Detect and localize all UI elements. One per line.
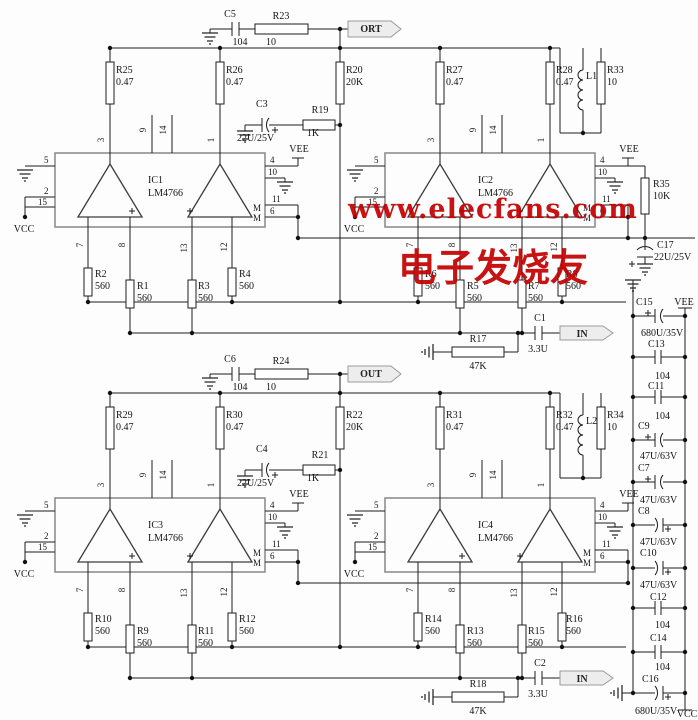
label-pins-p1: 1 bbox=[536, 483, 546, 488]
label-pins-m: M bbox=[583, 548, 591, 558]
label-resistors-R31-v: 0.47 bbox=[446, 422, 464, 433]
label-pins-p14: 14 bbox=[488, 125, 498, 135]
label-pins-p7: 7 bbox=[405, 587, 415, 592]
label-resistors-R16-v: 560 bbox=[566, 626, 581, 637]
label-pins-p8: 8 bbox=[117, 242, 127, 247]
label-ics-0-ref: IC1 bbox=[148, 175, 163, 186]
label-capacitors-C5-r: C5 bbox=[224, 9, 236, 20]
label-resistors-R35-v: 10K bbox=[653, 191, 671, 202]
label-capacitors-C16-v: 680U/35V bbox=[635, 706, 678, 717]
label-pins-p5: 5 bbox=[44, 155, 49, 165]
label-pins-p9: 9 bbox=[468, 127, 478, 132]
label-power-vee: VEE bbox=[619, 489, 638, 500]
label-pins-p15: 15 bbox=[38, 542, 48, 552]
label-resistors-R23-v: 10 bbox=[266, 37, 276, 48]
label-resistors-R13-r: R13 bbox=[467, 626, 484, 637]
label-pins-p9: 9 bbox=[468, 472, 478, 477]
label-pins-p11: 11 bbox=[602, 539, 611, 549]
label-capacitors-C14-v: 104 bbox=[655, 662, 670, 673]
label-resistors-R15-v: 560 bbox=[528, 638, 543, 649]
label-resistors-R7-v: 560 bbox=[528, 293, 543, 304]
label-ics-2-ref: IC3 bbox=[148, 520, 163, 531]
label-resistors-R35-r: R35 bbox=[653, 179, 670, 190]
label-pins-p10: 10 bbox=[268, 512, 278, 522]
label-capacitors-C14-r: C14 bbox=[650, 633, 667, 644]
label-capacitors-C6-v: 104 bbox=[233, 382, 248, 393]
label-pins-p6: 6 bbox=[600, 551, 605, 561]
label-capacitors-C9-v: 47U/63V bbox=[640, 451, 678, 462]
label-pins-p10: 10 bbox=[268, 167, 278, 177]
label-capacitors-C10-v: 47U/63V bbox=[640, 580, 678, 591]
label-ics-3-ref: IC4 bbox=[478, 520, 493, 531]
label-resistors-R11-r: R11 bbox=[198, 626, 214, 637]
label-capacitors-C4-r: C4 bbox=[256, 444, 268, 455]
label-pins-m: M bbox=[583, 558, 591, 568]
label-pins-p4: 4 bbox=[270, 500, 275, 510]
label-ics-3-part: LM4766 bbox=[478, 533, 513, 544]
label-resistors-R12-r: R12 bbox=[239, 614, 256, 625]
label-resistors-R26-v: 0.47 bbox=[226, 77, 244, 88]
label-resistors-R17-r: R17 bbox=[470, 334, 487, 345]
label-pins-p1: 1 bbox=[206, 483, 216, 488]
label-capacitors-C13-r: C13 bbox=[648, 339, 665, 350]
label-resistors-R13-v: 560 bbox=[467, 638, 482, 649]
label-pins-p3: 3 bbox=[426, 137, 436, 142]
label-pins-p5: 5 bbox=[374, 155, 379, 165]
label-inductors-L1-r: L1 bbox=[586, 71, 597, 82]
label-pins-p11: 11 bbox=[272, 194, 281, 204]
label-pins-p11: 11 bbox=[272, 539, 281, 549]
label-pins-p2: 2 bbox=[374, 531, 379, 541]
label-capacitors-C5-v: 104 bbox=[233, 37, 248, 48]
label-pins-p4: 4 bbox=[600, 500, 605, 510]
label-pins-p13: 13 bbox=[509, 588, 519, 598]
label-resistors-R33-r: R33 bbox=[607, 65, 624, 76]
label-pins-p14: 14 bbox=[488, 470, 498, 480]
label-capacitors-C12-v: 104 bbox=[655, 620, 670, 631]
label-flags-ort: ORT bbox=[360, 24, 382, 35]
label-pins-p4: 4 bbox=[270, 155, 275, 165]
labels-layer: IC1LM4766521539141410116781312MMVCCVEEIC… bbox=[14, 9, 698, 720]
label-watermark-line1: www.elecfans.com bbox=[347, 194, 638, 225]
label-resistors-R5-v: 560 bbox=[467, 293, 482, 304]
label-pins-p5: 5 bbox=[44, 500, 49, 510]
label-capacitors-C8-r: C8 bbox=[638, 506, 650, 517]
label-resistors-R21-r: R21 bbox=[312, 450, 329, 461]
label-resistors-R10-v: 560 bbox=[95, 626, 110, 637]
label-capacitors-C7-v: 47U/63V bbox=[640, 495, 678, 506]
label-capacitors-C16-r: C16 bbox=[642, 674, 659, 685]
label-power-vee: VEE bbox=[289, 144, 308, 155]
label-pins-p12: 12 bbox=[549, 588, 559, 597]
label-flags-in: IN bbox=[576, 329, 588, 340]
label-pins-p3: 3 bbox=[426, 482, 436, 487]
label-power-vcc: VCC bbox=[14, 224, 35, 235]
label-resistors-R4-r: R4 bbox=[239, 269, 251, 280]
label-resistors-R32-r: R32 bbox=[556, 410, 573, 421]
label-resistors-R10-r: R10 bbox=[95, 614, 112, 625]
label-pins-p3: 3 bbox=[96, 137, 106, 142]
schematic-svg: IC1LM4766521539141410116781312MMVCCVEEIC… bbox=[0, 0, 698, 720]
label-capacitors-C8-v: 47U/63V bbox=[640, 537, 678, 548]
label-capacitors-C2-r: C2 bbox=[534, 658, 546, 669]
label-resistors-R27-v: 0.47 bbox=[446, 77, 464, 88]
label-pins-p10: 10 bbox=[598, 512, 608, 522]
label-resistors-R18-v: 47K bbox=[469, 706, 487, 717]
label-ics-1-ref: IC2 bbox=[478, 175, 493, 186]
label-resistors-R29-r: R29 bbox=[116, 410, 133, 421]
label-pins-p1: 1 bbox=[206, 138, 216, 143]
label-pins-p6: 6 bbox=[270, 206, 275, 216]
label-capacitors-C1-v: 3.3U bbox=[528, 344, 549, 355]
label-ics-0-part: LM4766 bbox=[148, 188, 183, 199]
label-resistors-R15-r: R15 bbox=[528, 626, 545, 637]
label-pins-p14: 14 bbox=[158, 470, 168, 480]
label-resistors-R23-r: R23 bbox=[273, 11, 290, 22]
label-resistors-R20-r: R20 bbox=[346, 65, 363, 76]
label-resistors-R18-r: R18 bbox=[470, 679, 487, 690]
label-pins-m: M bbox=[253, 213, 261, 223]
label-pins-p5: 5 bbox=[374, 500, 379, 510]
label-power-vee: VEE bbox=[674, 297, 693, 308]
label-capacitors-C9-r: C9 bbox=[638, 421, 650, 432]
label-capacitors-C11-r: C11 bbox=[648, 381, 664, 392]
label-capacitors-C15-r: C15 bbox=[636, 297, 653, 308]
label-pins-p9: 9 bbox=[138, 472, 148, 477]
label-pins-p1: 1 bbox=[536, 138, 546, 143]
label-resistors-R2-r: R2 bbox=[95, 269, 107, 280]
label-flags-in: IN bbox=[576, 674, 588, 685]
label-capacitors-C6-r: C6 bbox=[224, 354, 236, 365]
label-capacitors-C3-r: C3 bbox=[256, 99, 268, 110]
label-power-vee: VEE bbox=[619, 144, 638, 155]
label-resistors-R1-v: 560 bbox=[137, 293, 152, 304]
label-power-vcc: VCC bbox=[344, 224, 365, 235]
label-resistors-R11-v: 560 bbox=[198, 638, 213, 649]
label-resistors-R1-r: R1 bbox=[137, 281, 149, 292]
label-pins-p4: 4 bbox=[600, 155, 605, 165]
label-resistors-R24-v: 10 bbox=[266, 382, 276, 393]
label-capacitors-C3-v: 22U/25V bbox=[237, 133, 275, 144]
label-resistors-R28-r: R28 bbox=[556, 65, 573, 76]
label-resistors-R19-r: R19 bbox=[312, 105, 329, 116]
label-pins-p12: 12 bbox=[219, 588, 229, 597]
label-resistors-R29-v: 0.47 bbox=[116, 422, 134, 433]
label-resistors-R12-v: 560 bbox=[239, 626, 254, 637]
label-resistors-R22-v: 20K bbox=[346, 422, 364, 433]
label-resistors-R3-r: R3 bbox=[198, 281, 210, 292]
label-resistors-R3-v: 560 bbox=[198, 293, 213, 304]
label-resistors-R27-r: R27 bbox=[446, 65, 463, 76]
label-resistors-R9-r: R9 bbox=[137, 626, 149, 637]
label-inductors-L2-r: L2 bbox=[586, 416, 597, 427]
label-power-vcc: VCC bbox=[677, 709, 698, 720]
label-resistors-R14-r: R14 bbox=[425, 614, 442, 625]
label-power-vee: VEE bbox=[289, 489, 308, 500]
label-pins-p2: 2 bbox=[44, 186, 49, 196]
label-capacitors-C1-r: C1 bbox=[534, 313, 546, 324]
label-pins-p12: 12 bbox=[219, 243, 229, 252]
label-resistors-R30-v: 0.47 bbox=[226, 422, 244, 433]
label-resistors-R21-v: 1K bbox=[307, 473, 320, 484]
label-capacitors-C17-r: C17 bbox=[657, 240, 674, 251]
label-resistors-R9-v: 560 bbox=[137, 638, 152, 649]
label-pins-p3: 3 bbox=[96, 482, 106, 487]
label-power-vcc: VCC bbox=[14, 569, 35, 580]
label-resistors-R34-r: R34 bbox=[607, 410, 624, 421]
label-pins-m: M bbox=[253, 548, 261, 558]
label-resistors-R14-v: 560 bbox=[425, 626, 440, 637]
schematic-page: IC1LM4766521539141410116781312MMVCCVEEIC… bbox=[0, 0, 698, 720]
label-resistors-R25-r: R25 bbox=[116, 65, 133, 76]
label-pins-p7: 7 bbox=[75, 587, 85, 592]
label-pins-p8: 8 bbox=[117, 587, 127, 592]
label-resistors-R30-r: R30 bbox=[226, 410, 243, 421]
label-pins-p10: 10 bbox=[598, 167, 608, 177]
label-capacitors-C7-r: C7 bbox=[638, 463, 650, 474]
label-resistors-R17-v: 47K bbox=[469, 361, 487, 372]
label-power-vcc: VCC bbox=[344, 569, 365, 580]
label-capacitors-C2-v: 3.3U bbox=[528, 689, 549, 700]
label-pins-p15: 15 bbox=[368, 542, 378, 552]
label-pins-p7: 7 bbox=[75, 242, 85, 247]
label-flags-out: OUT bbox=[360, 369, 382, 380]
label-resistors-R28-v: 0.47 bbox=[556, 77, 574, 88]
label-pins-p13: 13 bbox=[179, 243, 189, 253]
label-resistors-R34-v: 10 bbox=[607, 422, 617, 433]
label-pins-m: M bbox=[253, 203, 261, 213]
label-resistors-R16-r: R16 bbox=[566, 614, 583, 625]
label-capacitors-C15-v: 680U/35V bbox=[641, 328, 684, 339]
label-capacitors-C10-r: C10 bbox=[640, 548, 657, 559]
label-watermark-line2: 电子发烧友 bbox=[398, 246, 588, 290]
label-capacitors-C17-v: 22U/25V bbox=[654, 252, 692, 263]
label-pins-p2: 2 bbox=[44, 531, 49, 541]
label-capacitors-C12-r: C12 bbox=[650, 592, 667, 603]
label-resistors-R33-v: 10 bbox=[607, 77, 617, 88]
label-resistors-R19-v: 1K bbox=[307, 128, 320, 139]
label-pins-p9: 9 bbox=[138, 127, 148, 132]
label-pins-p6: 6 bbox=[270, 551, 275, 561]
label-pins-p8: 8 bbox=[447, 587, 457, 592]
label-resistors-R25-v: 0.47 bbox=[116, 77, 134, 88]
label-pins-p15: 15 bbox=[38, 197, 48, 207]
label-ics-2-part: LM4766 bbox=[148, 533, 183, 544]
label-resistors-R24-r: R24 bbox=[273, 356, 290, 367]
label-resistors-R4-v: 560 bbox=[239, 281, 254, 292]
label-resistors-R22-r: R22 bbox=[346, 410, 363, 421]
label-resistors-R26-r: R26 bbox=[226, 65, 243, 76]
label-capacitors-C4-v: 22U/25V bbox=[237, 478, 275, 489]
label-capacitors-C11-v: 104 bbox=[655, 411, 670, 422]
label-resistors-R32-v: 0.47 bbox=[556, 422, 574, 433]
label-resistors-R2-v: 560 bbox=[95, 281, 110, 292]
label-pins-p14: 14 bbox=[158, 125, 168, 135]
label-pins-m: M bbox=[253, 558, 261, 568]
label-resistors-R31-r: R31 bbox=[446, 410, 463, 421]
label-resistors-R20-v: 20K bbox=[346, 77, 364, 88]
label-pins-p13: 13 bbox=[179, 588, 189, 598]
